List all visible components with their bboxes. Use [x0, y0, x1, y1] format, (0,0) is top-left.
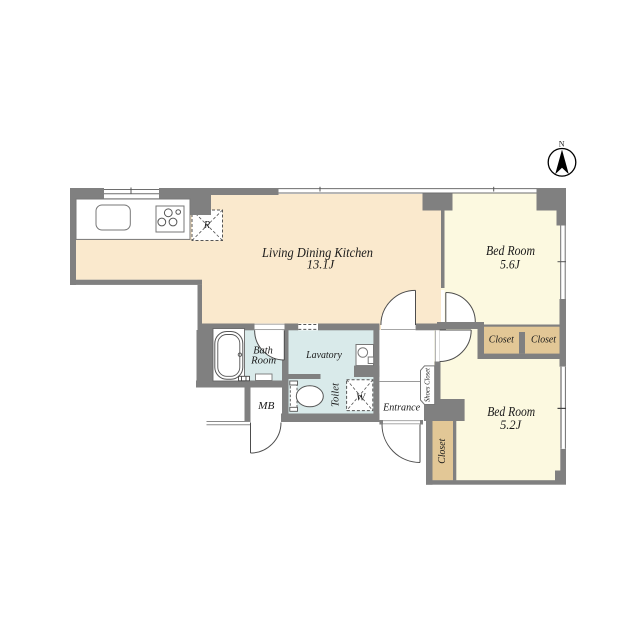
- svg-text:Closet: Closet: [531, 333, 557, 345]
- svg-text:Closet: Closet: [489, 333, 515, 345]
- svg-text:R: R: [203, 220, 211, 231]
- svg-text:Entrance: Entrance: [382, 403, 420, 414]
- svg-text:13.1J: 13.1J: [307, 257, 336, 272]
- svg-text:5.2J: 5.2J: [500, 417, 522, 432]
- svg-text:W: W: [356, 391, 366, 403]
- svg-text:N: N: [559, 139, 565, 148]
- svg-text:MB: MB: [257, 400, 275, 412]
- svg-text:5.6J: 5.6J: [500, 257, 521, 272]
- svg-text:Lavatory: Lavatory: [305, 350, 342, 361]
- svg-text:Shoes Closet: Shoes Closet: [423, 367, 431, 402]
- svg-text:Room: Room: [250, 356, 276, 367]
- svg-text:Closet: Closet: [436, 438, 448, 464]
- svg-text:Toilet: Toilet: [329, 382, 341, 407]
